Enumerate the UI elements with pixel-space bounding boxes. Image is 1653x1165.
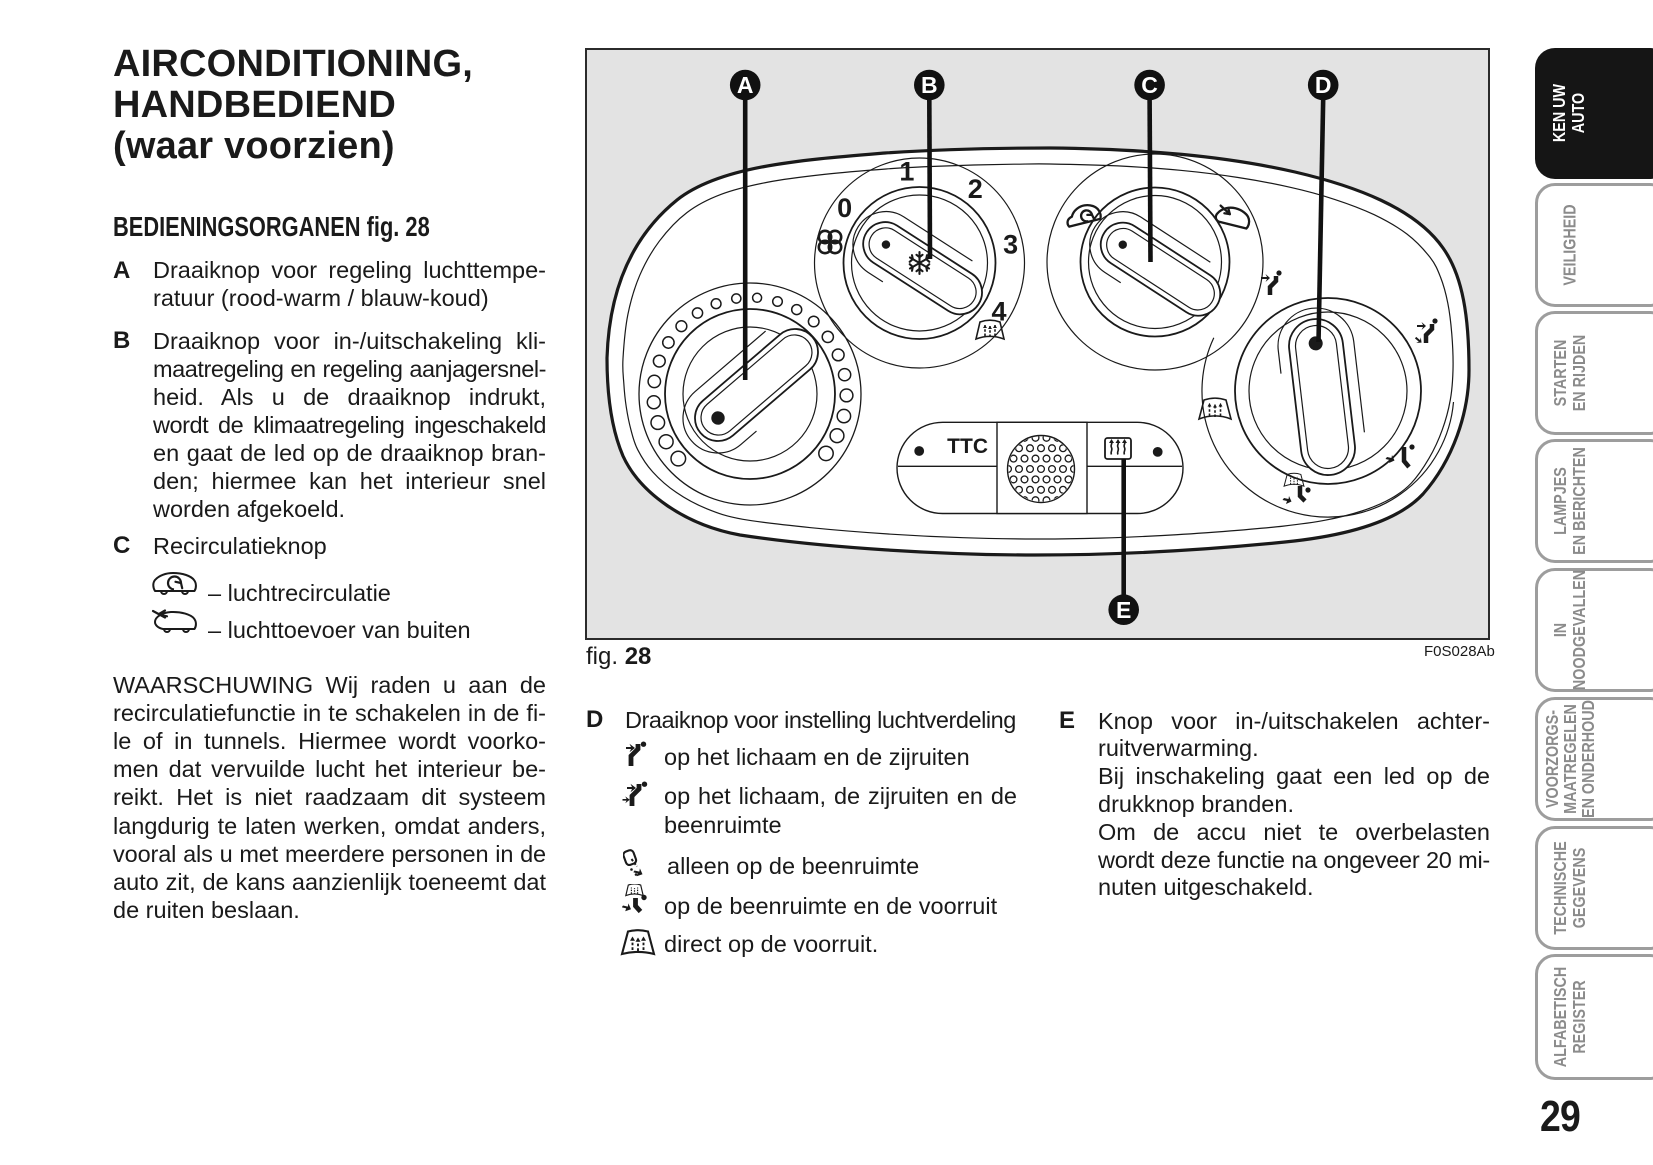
svg-text:B: B	[921, 72, 938, 98]
svg-text:TTC: TTC	[947, 435, 988, 458]
svg-text:1: 1	[899, 156, 914, 186]
svg-text:A: A	[737, 72, 754, 98]
svg-text:C: C	[1141, 72, 1158, 98]
svg-text:2: 2	[968, 174, 983, 204]
svg-text:D: D	[1315, 72, 1332, 98]
svg-text:0: 0	[837, 193, 852, 223]
svg-text:E: E	[1116, 597, 1131, 623]
svg-text:3: 3	[1003, 230, 1018, 260]
